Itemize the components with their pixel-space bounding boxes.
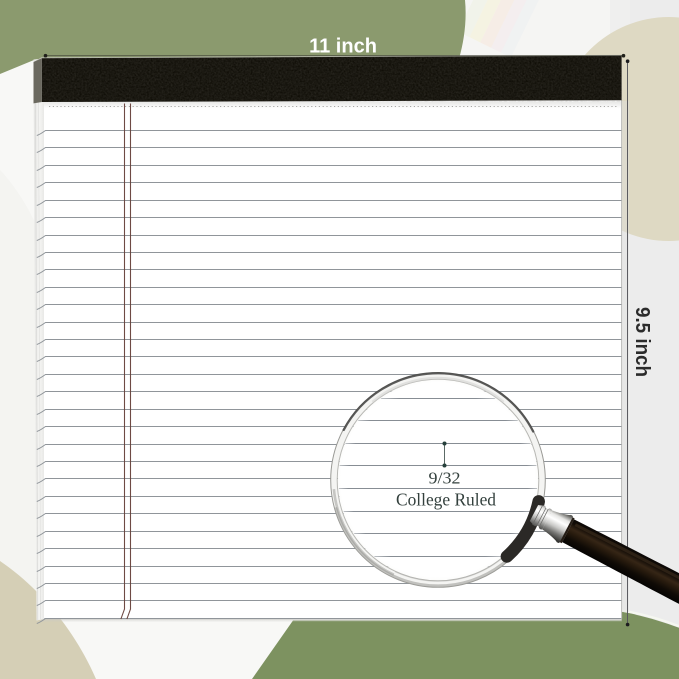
svg-text:9.5 inch: 9.5 inch bbox=[631, 307, 653, 377]
svg-text:11 inch: 11 inch bbox=[309, 36, 377, 58]
